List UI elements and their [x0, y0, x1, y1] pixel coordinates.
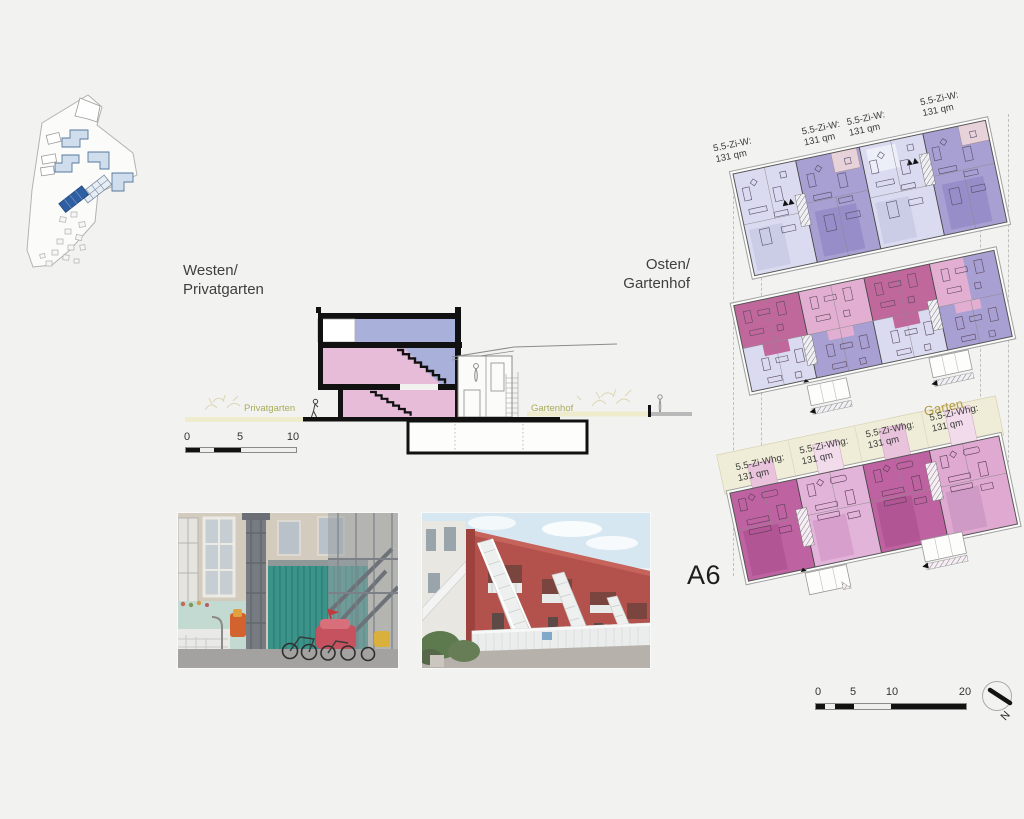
section-scale-bar: [185, 447, 297, 453]
photo-red-facade-west: [422, 513, 650, 668]
garden-sketch-west: [205, 395, 240, 410]
section-west-line2: Privatgarten: [183, 280, 264, 299]
upper-unit-label-4: 5.5-Zi-W: 131 qm: [919, 90, 961, 119]
building-id-label: A6: [687, 560, 721, 591]
section-east-line2: Gartenhof: [570, 274, 690, 293]
person-figure-east: [658, 395, 662, 412]
section-basement: [408, 421, 587, 453]
section-cut-building: [316, 307, 462, 417]
north-needle: [990, 690, 1010, 703]
north-label: N: [999, 709, 1013, 723]
floor-plan-upper: 5.5-Zi-W: 131 qm 5.5-Zi-W: 131 qm 5.5-Zi…: [733, 120, 1007, 275]
section-west-label: Westen/ Privatgarten: [183, 261, 264, 299]
person-figure-west: [312, 399, 319, 417]
main-scale-10: 10: [886, 686, 898, 698]
main-scale-bar: [815, 703, 967, 710]
upper-unit-label-3: 5.5-Zi-W: 131 qm: [846, 110, 888, 139]
section-west-line1: Westen/: [183, 261, 264, 280]
main-scale-20: 20: [959, 686, 971, 698]
site-plan: [18, 88, 176, 284]
section-east-label: Osten/ Gartenhof: [570, 255, 690, 293]
north-arrow: N: [975, 676, 1023, 732]
upper-unit-label-2: 5.5-Zi-W: 131 qm: [801, 120, 843, 149]
garden-sketch-east: [577, 389, 631, 406]
section-upper-room: [355, 319, 460, 342]
main-scale-0: 0: [815, 686, 821, 698]
section-ground-room: [338, 390, 460, 417]
photo-courtyard-east: [178, 513, 398, 668]
main-scale-5: 5: [850, 686, 856, 698]
section-east-line1: Osten/: [570, 255, 690, 274]
building-section: [180, 300, 700, 460]
upper-unit-label-1: 5.5-Zi-W: 131 qm: [712, 137, 754, 166]
section-scale-0: 0: [184, 431, 190, 443]
gartenhof-label: Gartenhof: [531, 403, 573, 414]
presentation-board: Westen/ Privatgarten Osten/ Gartenhof: [0, 0, 1024, 819]
section-scale-5: 5: [237, 431, 243, 443]
section-scale-10: 10: [287, 431, 299, 443]
privatgarten-label: Privatgarten: [244, 403, 295, 414]
